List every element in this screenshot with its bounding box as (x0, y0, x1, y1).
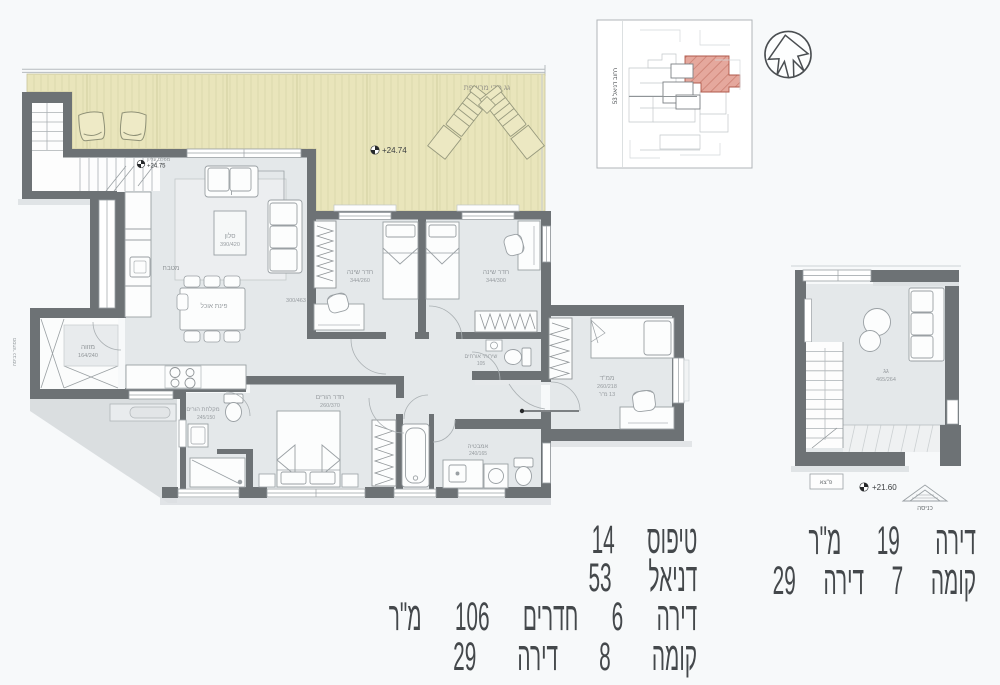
svg-text:+24.75: +24.75 (147, 164, 166, 170)
svg-text:מסתור כביסה: מסתור כביסה (12, 337, 18, 366)
svg-text:פינת אוכל: פינת אוכל (201, 302, 228, 310)
svg-text:חדר הורים: חדר הורים (316, 394, 344, 401)
svg-text:260/218: 260/218 (597, 384, 617, 390)
svg-text:ממ"ד: ממ"ד (600, 375, 615, 382)
svg-text:465/264: 465/264 (876, 377, 896, 383)
svg-text:245/150: 245/150 (197, 415, 215, 421)
svg-text:13 מ"ר: 13 מ"ר (599, 392, 615, 398)
svg-text:260/370: 260/370 (320, 403, 340, 409)
svg-text:שירותי אורחים: שירותי אורחים (465, 354, 498, 360)
svg-text:344/300: 344/300 (486, 278, 506, 284)
svg-text:מזווה: מזווה (81, 344, 95, 351)
svg-text:105: 105 (477, 361, 486, 367)
svg-text:פ"צא: פ"צא (820, 480, 833, 486)
svg-text:חדר שינה: חדר שינה (347, 269, 373, 276)
svg-text:מטבח: מטבח (163, 265, 180, 272)
svg-text:164/240: 164/240 (78, 353, 98, 359)
svg-text:300/463: 300/463 (286, 298, 306, 304)
svg-text:חדר שינה: חדר שינה (483, 269, 509, 276)
svg-text:סלון: סלון (224, 232, 235, 240)
svg-text:+24.74: +24.74 (382, 146, 407, 155)
svg-text:רחוב דניאל 53: רחוב דניאל 53 (611, 68, 619, 104)
svg-text:אמבטיה: אמבטיה (468, 444, 489, 450)
svg-text:344/260: 344/260 (350, 278, 370, 284)
svg-text:כניסה: כניסה (917, 505, 933, 512)
svg-text:390/420: 390/420 (220, 242, 240, 248)
svg-text:+21.60: +21.60 (872, 483, 897, 492)
svg-text:240/165: 240/165 (469, 451, 487, 457)
svg-text:מקלחת הורים: מקלחת הורים (186, 406, 219, 413)
svg-text:מפלס עליון: מפלס עליון (147, 156, 171, 163)
svg-text:גג: גג (883, 368, 889, 375)
